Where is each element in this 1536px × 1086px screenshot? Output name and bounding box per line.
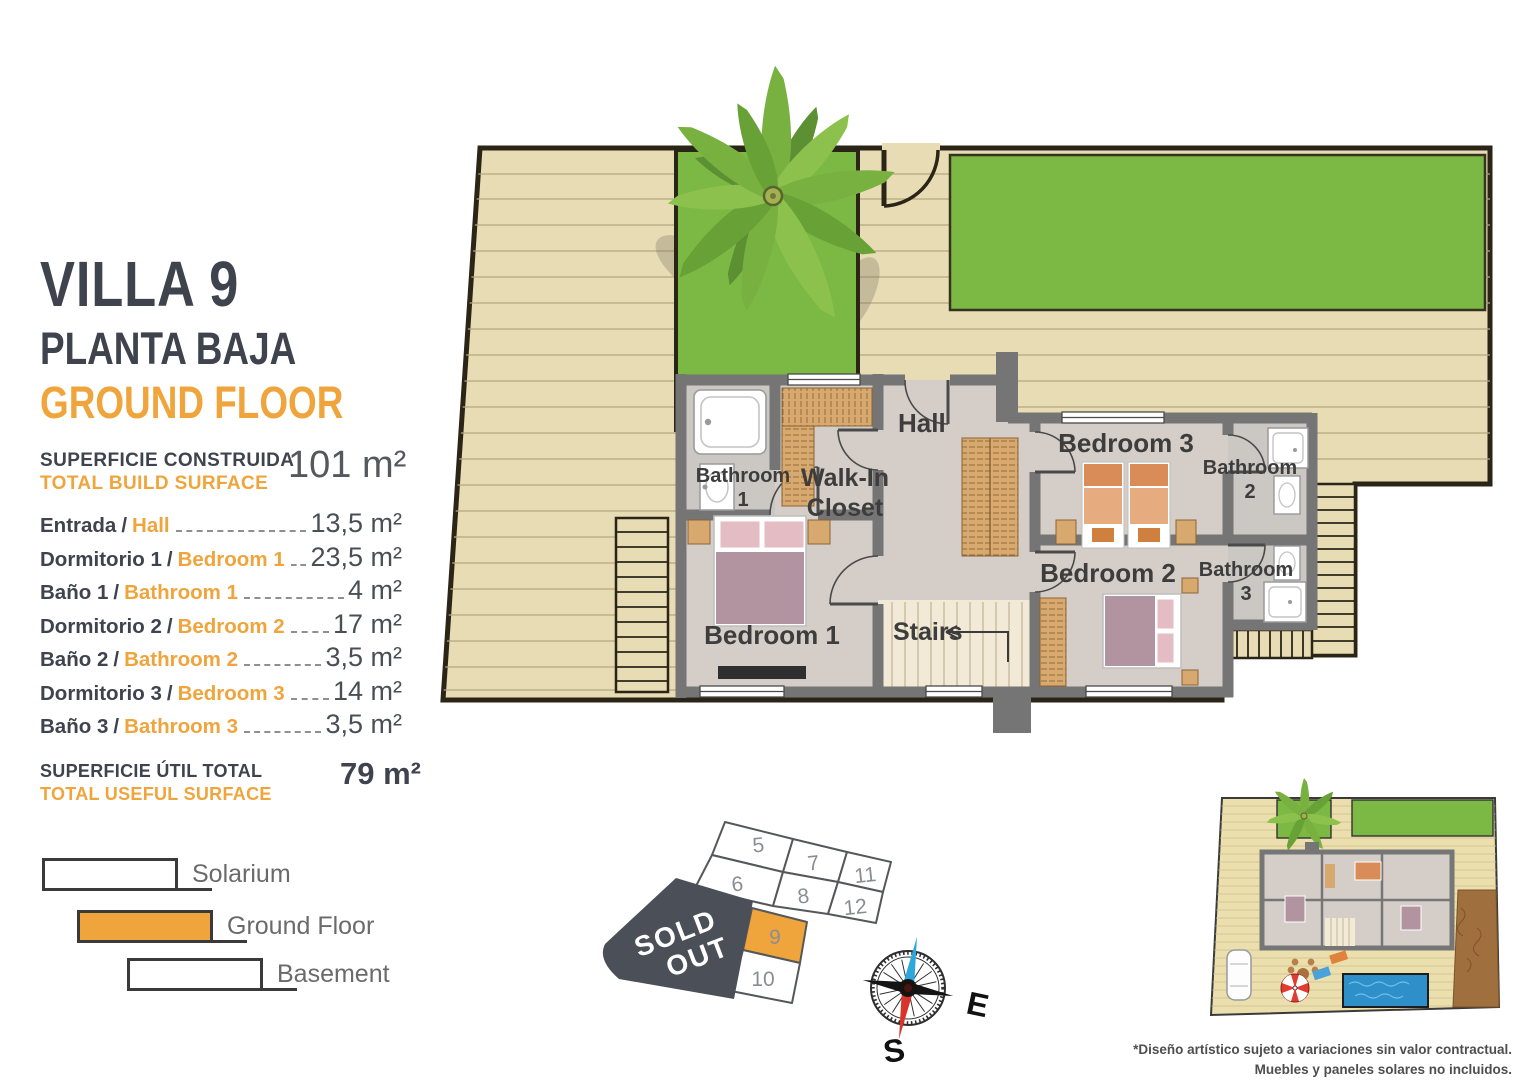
dotted-leader — [291, 564, 307, 566]
legend-swatch-basement — [127, 958, 263, 991]
separator: / — [167, 615, 173, 639]
window — [1062, 412, 1164, 423]
build-surface-label-es: SUPERFICIE CONSTRUIDA — [40, 450, 294, 473]
wall-stub — [996, 352, 1018, 422]
useful-surface-labels: SUPERFICIE ÚTIL TOTAL TOTAL USEFUL SURFA… — [40, 760, 272, 805]
room-name-es: Entrada — [40, 514, 116, 538]
thumb-umbrella — [1281, 974, 1309, 1002]
floorplan: Hall Walk-In Closet Bathroom 1 Bedroom 1… — [440, 60, 1536, 760]
room-area: 3,5 m² — [325, 709, 402, 740]
plot-number-7: 7 — [806, 851, 820, 875]
room-name-en: Bathroom 1 — [124, 581, 238, 605]
room-area: 14 m² — [333, 676, 402, 707]
list-item: Entrada/Hall 13,5 m² — [40, 508, 402, 542]
list-item: Dormitorio 2/Bedroom 2 17 m² — [40, 609, 402, 643]
dotted-leader — [291, 698, 329, 700]
disclaimer-line2: Muebles y paneles solares no incluidos. — [1133, 1060, 1512, 1080]
list-item: Dormitorio 3/Bedroom 3 14 m² — [40, 676, 402, 710]
plot-number-6: 6 — [731, 873, 745, 897]
legend-underline — [127, 988, 297, 991]
thumb-pool — [1343, 974, 1428, 1007]
twin-bed — [1128, 462, 1170, 548]
build-surface-value: 101 m² — [288, 444, 406, 487]
separator: / — [113, 581, 119, 605]
walkin-label-line2: Closet — [807, 494, 884, 522]
bedroom2-wardrobe — [1040, 598, 1066, 686]
room-name-en: Bathroom 2 — [124, 648, 238, 672]
separator: / — [121, 514, 127, 538]
legend-swatch-solarium — [42, 858, 178, 891]
floor-title-en: GROUND FLOOR — [40, 380, 343, 425]
dotted-leader — [291, 631, 329, 633]
room-area-list: Entrada/Hall 13,5 m² Dormitorio 1/Bedroo… — [40, 508, 402, 743]
room-area: 17 m² — [333, 609, 402, 640]
room-area: 13,5 m² — [310, 508, 402, 539]
thumb-house — [1262, 842, 1452, 948]
bedroom3-label: Bedroom 3 — [1058, 428, 1194, 458]
wall-tab — [993, 687, 1031, 733]
bathroom1-label: Bathroom — [696, 465, 790, 487]
legend-swatch-ground-floor — [77, 910, 213, 943]
window — [1086, 686, 1172, 697]
bedroom1-label: Bedroom 1 — [704, 620, 840, 650]
legend-label-ground-floor: Ground Floor — [227, 912, 374, 941]
useful-surface-label-es: SUPERFICIE ÚTIL TOTAL — [40, 760, 272, 783]
useful-surface-value: 79 m² — [340, 756, 421, 792]
room-name-es: Baño 1 — [40, 581, 108, 605]
bedroom2-label: Bedroom 2 — [1040, 558, 1176, 588]
separator: / — [113, 648, 119, 672]
exterior-stairs-left — [616, 518, 668, 692]
compass: E S — [845, 935, 995, 1085]
room-name-es: Dormitorio 1 — [40, 548, 162, 572]
list-item: Dormitorio 1/Bedroom 1 23,5 m² — [40, 542, 402, 576]
window — [788, 374, 860, 385]
compass-south-label: S — [881, 1031, 907, 1070]
legend-label-solarium: Solarium — [192, 860, 291, 889]
window — [700, 686, 784, 697]
bathroom1-number: 1 — [737, 489, 748, 511]
legend-underline — [77, 940, 247, 943]
room-name-en: Bathroom 3 — [124, 715, 238, 739]
room-name-en: Bedroom 2 — [178, 615, 285, 639]
room-name-en: Hall — [132, 514, 170, 538]
build-surface-label-en: TOTAL BUILD SURFACE — [40, 473, 294, 496]
list-item: Baño 3/Bathroom 3 3,5 m² — [40, 709, 402, 743]
dotted-leader — [176, 530, 307, 532]
hall-wardrobe — [962, 438, 1018, 556]
thumb-dirt-area — [1453, 890, 1499, 1007]
thumb-car — [1227, 950, 1251, 1000]
legend-underline — [42, 888, 212, 891]
room-name-en: Bedroom 3 — [178, 682, 285, 706]
floor-title-es: PLANTA BAJA — [40, 326, 296, 371]
page-title: VILLA 9 — [40, 252, 239, 316]
separator: / — [167, 548, 173, 572]
twin-bed — [1082, 462, 1124, 548]
site-plan-thumbnail — [1205, 778, 1515, 1028]
disclaimer-line1: *Diseño artístico sujeto a variaciones s… — [1133, 1040, 1512, 1060]
plot-number-10: 10 — [751, 968, 774, 991]
stairs-label: Stairs — [893, 618, 962, 646]
dotted-leader — [244, 731, 322, 733]
dotted-leader — [244, 664, 322, 666]
room-area: 3,5 m² — [325, 642, 402, 673]
bathroom3-number: 3 — [1240, 583, 1251, 605]
list-item: Baño 2/Bathroom 2 3,5 m² — [40, 642, 402, 676]
walkin-label-line1: Walk-In — [801, 464, 889, 492]
separator: / — [167, 682, 173, 706]
lawn — [950, 155, 1485, 310]
plot-number-11: 11 — [853, 863, 877, 888]
plot-number-12: 12 — [843, 895, 869, 920]
room-area: 23,5 m² — [310, 542, 402, 573]
dotted-leader — [244, 597, 344, 599]
bathroom2-label: Bathroom — [1203, 457, 1297, 479]
plot-number-8: 8 — [796, 884, 810, 908]
build-surface-labels: SUPERFICIE CONSTRUIDA TOTAL BUILD SURFAC… — [40, 450, 294, 496]
bathtub — [694, 390, 766, 454]
bathroom3-label: Bathroom — [1199, 559, 1293, 581]
room-name-es: Baño 3 — [40, 715, 108, 739]
room-name-es: Baño 2 — [40, 648, 108, 672]
bathroom2-number: 2 — [1244, 481, 1255, 503]
bedroom1-tv-console — [718, 666, 806, 679]
room-name-en: Bedroom 1 — [178, 548, 285, 572]
disclaimer: *Diseño artístico sujeto a variaciones s… — [1133, 1040, 1512, 1081]
plot-number-9: 9 — [769, 926, 781, 949]
useful-surface-label-en: TOTAL USEFUL SURFACE — [40, 783, 272, 806]
separator: / — [113, 715, 119, 739]
room-name-es: Dormitorio 3 — [40, 682, 162, 706]
room-name-es: Dormitorio 2 — [40, 615, 162, 639]
plot-number-5: 5 — [752, 834, 766, 858]
hall-label: Hall — [898, 408, 946, 438]
window — [926, 686, 982, 697]
room-area: 4 m² — [348, 575, 402, 606]
compass-east-label: E — [964, 985, 992, 1025]
thumb-lawn — [1352, 800, 1493, 836]
legend-label-basement: Basement — [277, 960, 390, 989]
list-item: Baño 1/Bathroom 1 4 m² — [40, 575, 402, 609]
